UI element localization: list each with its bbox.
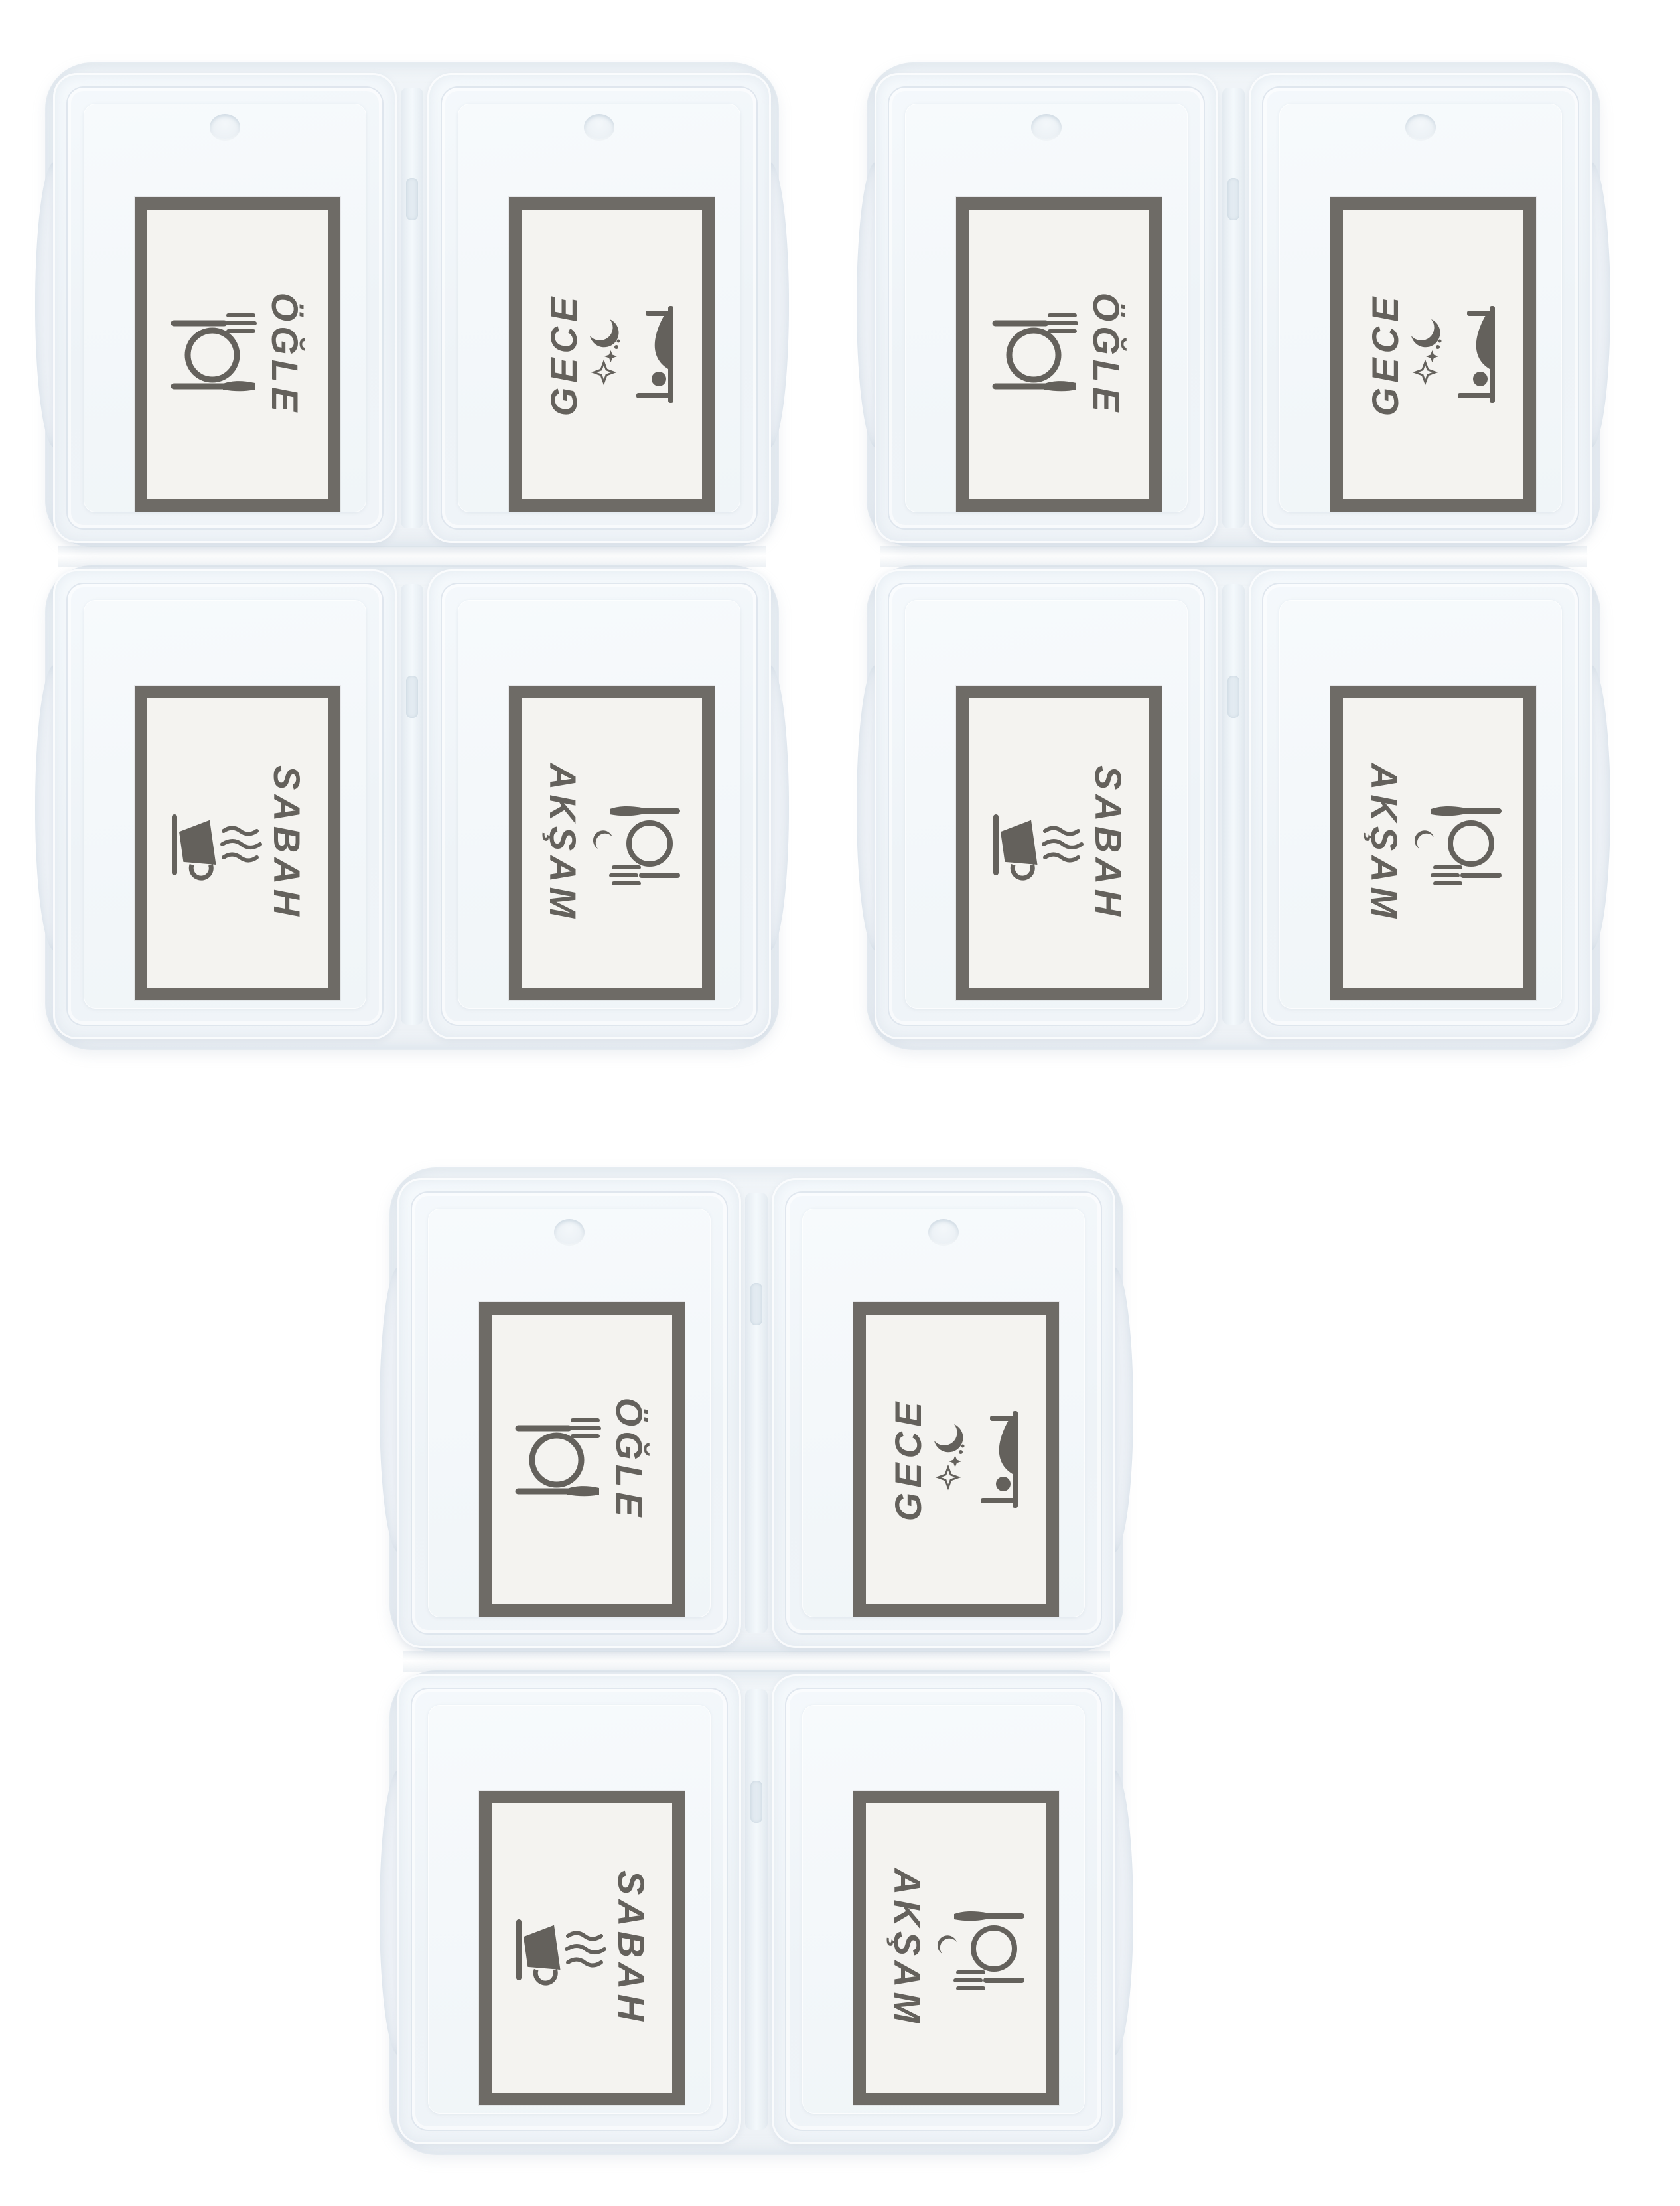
center-hinge-groove (1222, 584, 1245, 1025)
compartment-label-text: ÖĞLE (1087, 293, 1126, 417)
moon-stars-icon (1410, 318, 1442, 391)
crescent-plate-cutlery-icon (932, 1898, 1024, 1998)
compartment-label-text: GECE (889, 1398, 928, 1522)
compartment-label-text: ÖĞLE (266, 293, 305, 417)
crescent-plate-cutlery-icon (1409, 793, 1502, 893)
printed-label-gece: GECE (853, 1302, 1059, 1617)
compartment-label-text: GECE (1366, 293, 1405, 417)
hinge-knuckle (1227, 676, 1239, 718)
printed-label-gece: GECE (1330, 197, 1536, 512)
person-in-bed-icon (1447, 305, 1500, 404)
pill-organizer-box-1: ÖĞLE GECE SABAH AKŞAM (41, 58, 783, 1054)
plate-cutlery-icon (993, 305, 1082, 404)
printed-label-sabah: SABAH (479, 1791, 685, 2105)
person-in-bed-icon (970, 1410, 1023, 1509)
steaming-cup-icon (169, 793, 262, 893)
steaming-cup-icon (991, 793, 1084, 893)
hinge-knuckle (406, 676, 418, 718)
hinge-knuckle (750, 1283, 762, 1325)
printed-label-sabah: SABAH (135, 686, 340, 1000)
printed-label-aksam: AKŞAM (509, 686, 715, 1000)
center-hinge-groove (745, 1689, 768, 2130)
hinge-knuckle (406, 178, 418, 220)
row-seam (58, 546, 766, 567)
moon-stars-icon (589, 318, 620, 391)
printed-label-aksam: AKŞAM (853, 1791, 1059, 2105)
pill-organizer-box-3: ÖĞLE GECE SABAH AKŞAM (385, 1163, 1127, 2159)
latch-dimple (554, 1219, 585, 1246)
compartment-label-text: SABAH (612, 1870, 650, 2025)
printed-label-ogle: ÖĞLE (956, 197, 1162, 512)
latch-dimple (1405, 114, 1436, 141)
latch-dimple (1031, 114, 1062, 141)
printed-label-gece: GECE (509, 197, 715, 512)
person-in-bed-icon (626, 305, 679, 404)
printed-label-ogle: ÖĞLE (479, 1302, 685, 1617)
plate-cutlery-icon (171, 305, 261, 404)
latch-dimple (928, 1219, 959, 1246)
printed-label-sabah: SABAH (956, 686, 1162, 1000)
center-hinge-groove (401, 88, 423, 528)
hinge-knuckle (1227, 178, 1239, 220)
plate-cutlery-icon (516, 1410, 605, 1509)
compartment-label-text: AKŞAM (888, 1868, 926, 2027)
compartment-label-text: AKŞAM (543, 763, 582, 922)
compartment-label-text: SABAH (267, 765, 306, 920)
printed-label-ogle: ÖĞLE (135, 197, 340, 512)
printed-label-aksam: AKŞAM (1330, 686, 1536, 1000)
latch-dimple (584, 114, 614, 141)
compartment-label-text: AKŞAM (1365, 763, 1403, 922)
center-hinge-groove (745, 1193, 768, 1633)
pill-organizer-box-2: ÖĞLE GECE SABAH AKŞAM (863, 58, 1604, 1054)
moon-stars-icon (933, 1423, 965, 1496)
row-seam (403, 1651, 1110, 1672)
steaming-cup-icon (514, 1898, 606, 1998)
center-hinge-groove (401, 584, 423, 1025)
crescent-plate-cutlery-icon (587, 793, 680, 893)
center-hinge-groove (1222, 88, 1245, 528)
row-seam (880, 546, 1587, 567)
hinge-knuckle (750, 1781, 762, 1823)
product-photo: ÖĞLE GECE SABAH AKŞAM (0, 0, 1680, 2206)
compartment-label-text: GECE (545, 293, 583, 417)
compartment-label-text: ÖĞLE (610, 1398, 649, 1522)
latch-dimple (210, 114, 240, 141)
compartment-label-text: SABAH (1089, 765, 1127, 920)
